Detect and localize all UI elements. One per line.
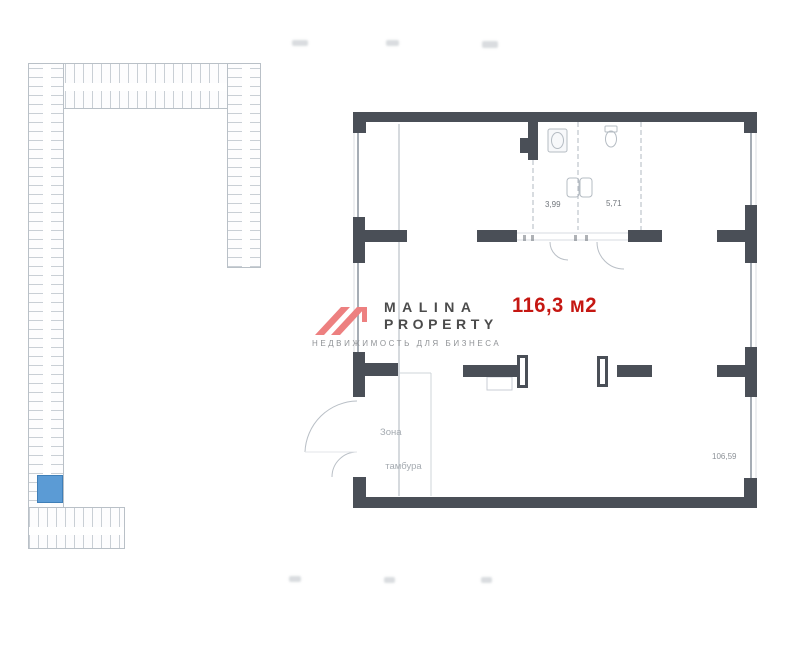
counter-outline [487,377,512,390]
wall-corner-tr [744,112,757,133]
wall-left-pier-2 [353,352,365,397]
malina-property-logo: MALINA PROPERTY НЕДВИЖИМОСТЬ ДЛЯ БИЗНЕСА [310,293,510,355]
wall-row1-right-stub [717,230,746,242]
wall-row2-left-stub [365,363,398,376]
malina-roof-icon [314,299,380,337]
tambour-line1: Зона [380,427,402,438]
toilet-icon [605,126,617,147]
washbasin-icon [548,129,567,152]
brand-line1: MALINA [384,299,498,316]
room-area-3-99: 3,99 [545,200,561,209]
artifact-smudge [292,40,308,46]
door-jamb-1 [517,355,528,388]
artifact-smudge [386,40,399,46]
wall-row1-left-stub [365,230,407,242]
wall-row2-right-stub [717,365,748,377]
wall-row2-seg1 [463,365,518,377]
brand-tagline: НЕДВИЖИМОСТЬ ДЛЯ БИЗНЕСА [312,339,501,348]
tambour-line2: тамбура [385,461,421,472]
entrance-door-arcs [305,401,357,477]
wall-row2-seg2 [617,365,652,377]
artifact-smudge [289,576,301,582]
artifact-smudge [481,577,492,583]
wall-left-pier-1 [353,217,365,263]
door-arcs-rooms [550,242,624,269]
artifact-smudge [482,41,498,48]
wall-right-pier-1 [745,205,757,263]
unit-area-label: 116,3 м2 [512,294,597,318]
main-room-area-label: 106,59 [712,452,736,461]
artifact-smudge [384,577,395,583]
wall-sanitary-jamb [520,138,528,153]
wall-sanitary-vertical [528,112,538,160]
wall-corner-tl [353,112,366,133]
door-jamb-2 [597,356,608,387]
wall-row1-seg1 [477,230,517,242]
wall-row1-seg2 [628,230,662,242]
room-area-5-71: 5,71 [606,199,622,208]
floorplan-page: { "logo": { "brand_line1": "MALINA", "br… [0,0,803,651]
wall-top [355,112,755,122]
brand-name: MALINA PROPERTY [384,299,498,333]
wc-fixture-icon [567,178,592,197]
brand-line2: PROPERTY [384,316,498,333]
wall-bottom [355,497,757,508]
tambour-zone-label: Зона тамбура [380,424,422,475]
